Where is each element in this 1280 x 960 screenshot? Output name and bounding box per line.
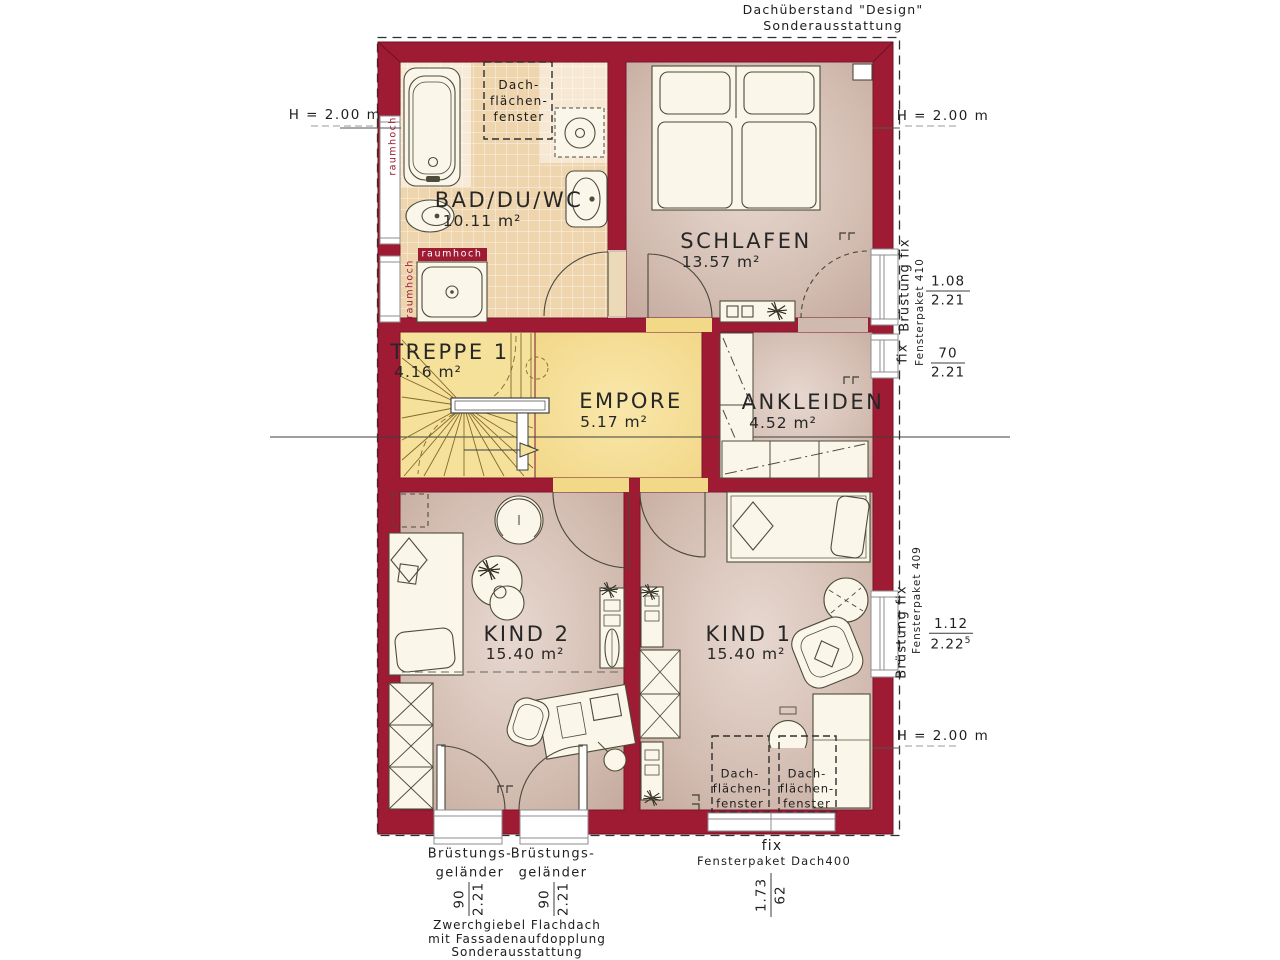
room-area-treppe: 4.16 m²	[394, 363, 462, 381]
room-label-kind2: KIND 2	[484, 622, 571, 646]
height-label-left: H = 2.00 m	[289, 107, 382, 123]
bathtub	[404, 68, 460, 186]
floorplan-canvas: Dachüberstand "Design" Sonderausstattung…	[0, 0, 1280, 960]
measure-1.12-2.225: 1.12 2.225	[929, 616, 973, 653]
zwerchgiebel-note: Zwerchgiebel Flachdach mit Fassadenaufdo…	[428, 919, 606, 960]
measure-70-2.21: 70 2.21	[931, 346, 965, 381]
floorplan-drawing	[0, 0, 1280, 960]
roof-window-label-kind1-b: Dach- flächen- fenster	[780, 767, 834, 812]
double-bed	[652, 66, 820, 210]
shower	[417, 262, 487, 322]
raumhoch-label-1: raumhoch	[388, 116, 399, 175]
raumhoch-label-3: raumhoch	[422, 249, 483, 260]
room-label-treppe: TREPPE 1	[390, 340, 509, 364]
roof-overhang-note: Dachüberstand "Design" Sonderausstattung	[743, 2, 924, 34]
measure-90-2.21-a: 90 2.21	[452, 882, 487, 916]
roof-window-label-kind1-a: Dach- flächen- fenster	[713, 767, 767, 812]
room-area-ankleiden: 4.52 m²	[749, 414, 817, 432]
brustung-fix-409: Brüstung fix	[895, 585, 910, 679]
roof-note-line1: Dachüberstand "Design"	[743, 2, 924, 18]
desk-lamp	[604, 749, 626, 771]
bruestungsgelaender-2-line1: Brüstungs-	[511, 847, 596, 862]
fensterpaket-409: Fensterpaket 409	[911, 546, 923, 654]
bruestungsgelaender-2-line2: geländer	[519, 866, 588, 881]
bed-kind2	[389, 533, 463, 675]
round-chair	[495, 496, 543, 544]
room-label-schlafen: SCHLAFEN	[680, 229, 811, 253]
room-label-ankleiden: ANKLEIDEN	[742, 390, 885, 414]
shelf-kind2	[600, 588, 624, 668]
room-label-empore: EMPORE	[579, 389, 682, 413]
window-right-fix	[871, 334, 898, 378]
measure-1.08-2.21: 1.08 2.21	[926, 274, 970, 309]
washing-machine	[555, 108, 604, 157]
measure-1.73-62: 1.73 62	[754, 873, 789, 917]
window-bottom-left-b	[520, 810, 588, 844]
fensterpaket-410: Fensterpaket 410	[914, 258, 926, 366]
room-label-kind1: KIND 1	[706, 622, 793, 646]
room-label-bad: BAD/DU/WC	[435, 188, 584, 212]
room-area-empore: 5.17 m²	[580, 413, 648, 431]
fix-label-410: fix	[896, 343, 911, 362]
corner-duct	[853, 64, 872, 80]
window-left-lower	[380, 256, 400, 322]
wardrobe-kind2	[389, 683, 433, 809]
room-area-kind1: 15.40 m²	[707, 645, 786, 663]
window-right-410	[871, 249, 898, 325]
room-area-schlafen: 13.57 m²	[682, 253, 761, 271]
measure-90-2.21-b: 90 2.21	[537, 882, 572, 916]
fix-label-dach400: fix	[762, 838, 783, 854]
raumhoch-label-2: raumhoch	[405, 259, 416, 318]
fensterpaket-dach400: Fensterpaket Dach400	[697, 854, 851, 868]
window-bottom-left-a	[434, 810, 502, 844]
window-bottom-dach400	[708, 813, 835, 831]
bed-kind1	[727, 492, 870, 562]
roof-note-line2: Sonderausstattung	[743, 18, 924, 34]
sideboard	[720, 301, 795, 322]
brustung-fix-410: Brüstung fix	[898, 238, 913, 332]
room-area-bad: 10.11 m²	[443, 212, 522, 230]
room-area-kind2: 15.40 m²	[486, 645, 565, 663]
bruestungsgelaender-1-line2: geländer	[436, 866, 505, 881]
roof-window-label-bad: Dach- flächen- fenster	[490, 77, 548, 125]
bruestungsgelaender-1-line1: Brüstungs-	[428, 847, 513, 862]
height-label-right-bottom: H = 2.00 m	[897, 728, 990, 744]
round-table-kind1	[824, 578, 868, 622]
height-label-right-top: H = 2.00 m	[897, 108, 990, 124]
